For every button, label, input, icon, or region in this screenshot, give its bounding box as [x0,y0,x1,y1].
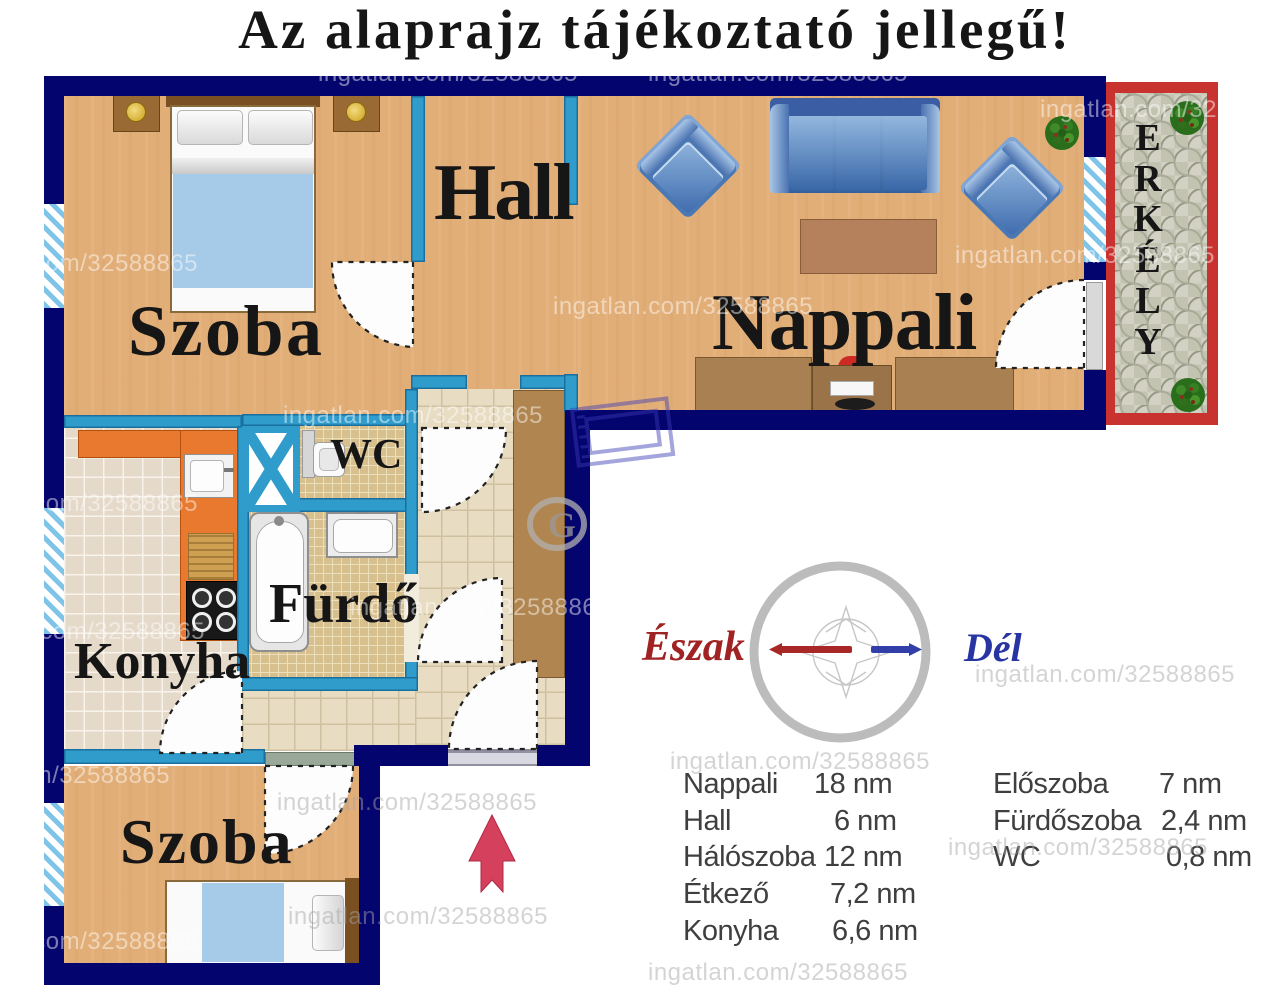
svg-text:G: G [548,505,576,545]
